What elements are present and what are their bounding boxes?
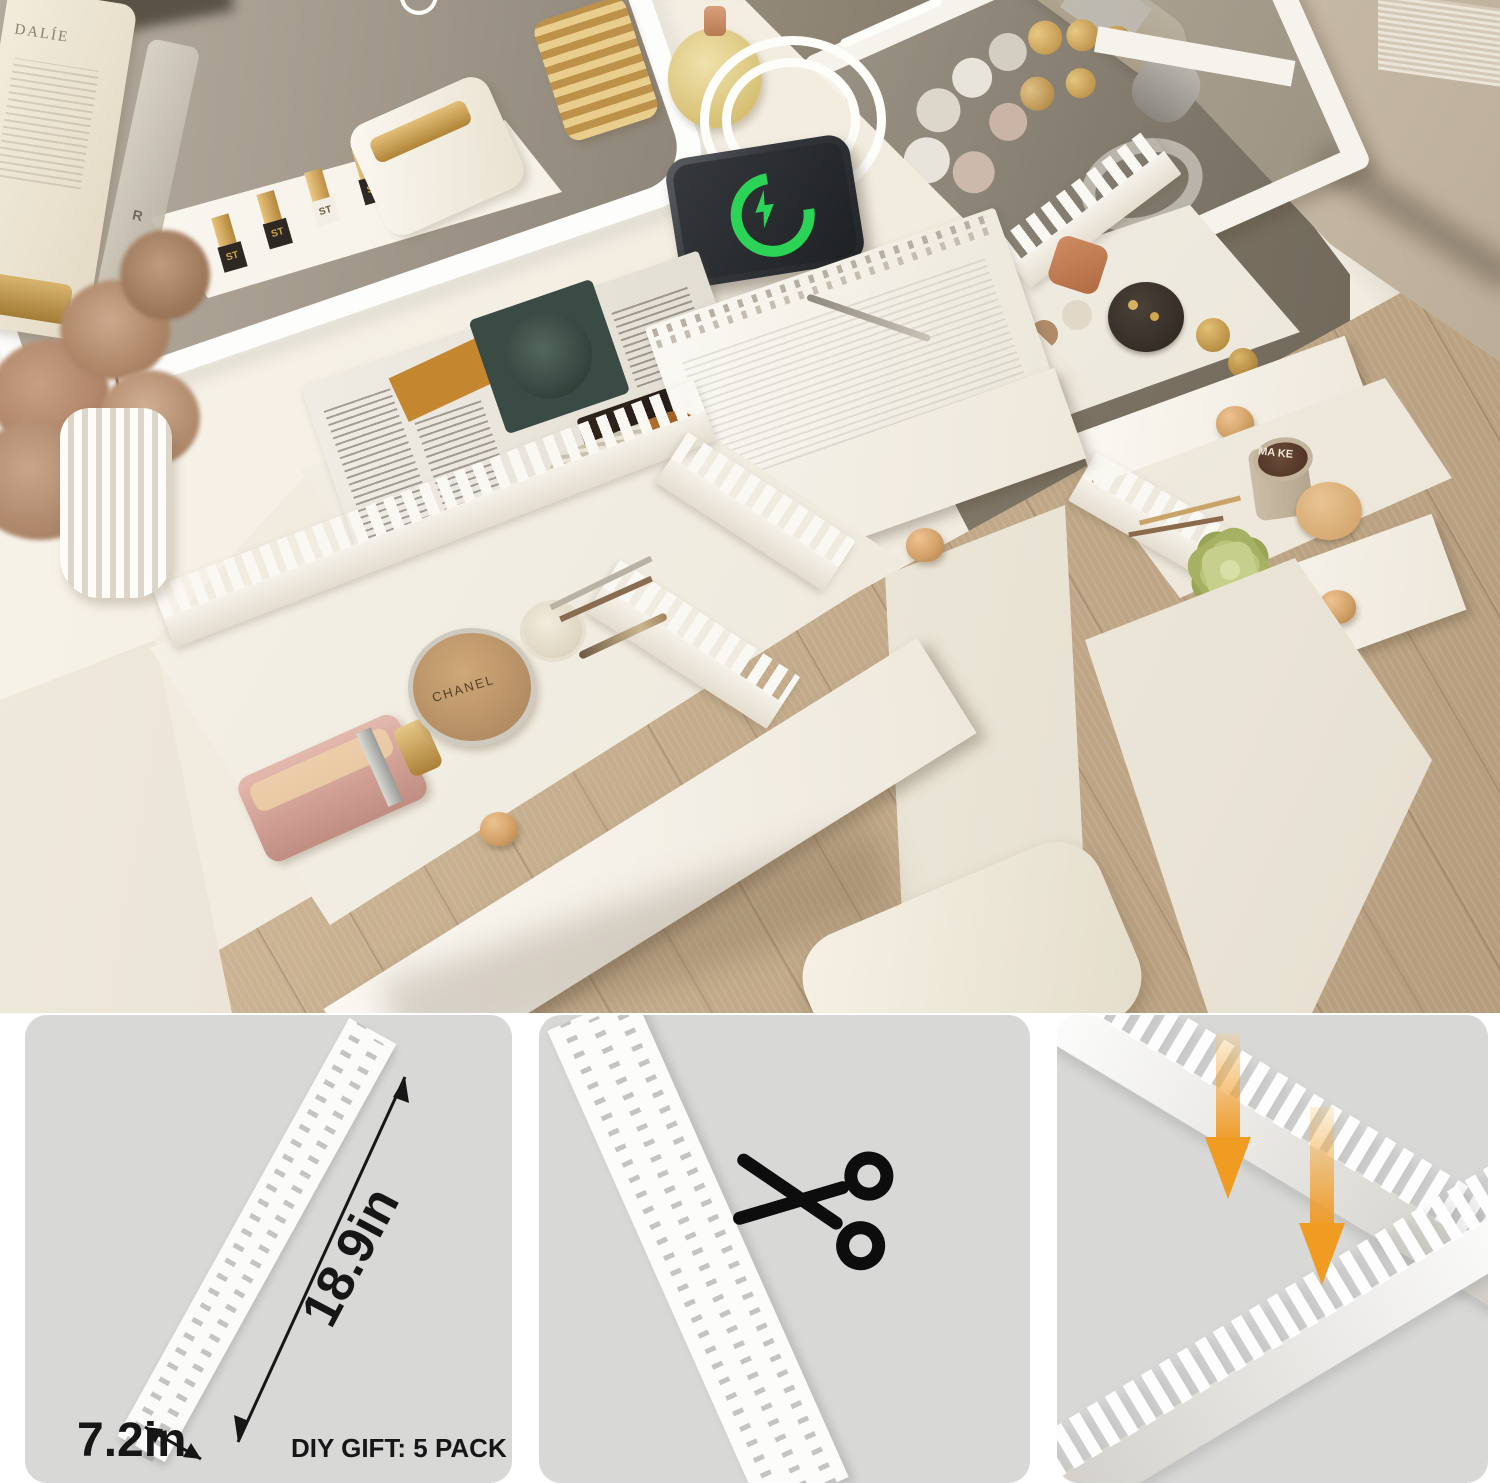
tube-brand-label: DALÍE: [13, 21, 70, 46]
lipstick-top: [1196, 318, 1230, 352]
glass-frame-bar: [1094, 26, 1295, 86]
bottle-cap: [946, 145, 1001, 200]
jewelry-dish: [1108, 282, 1184, 352]
chanel-powder-compact: CHANEL: [408, 628, 536, 746]
panel-assembly-guide: [1057, 1015, 1488, 1483]
diy-gift-note: DIY GIFT: 5 PACK: [291, 1433, 507, 1464]
mirror-touch-switch[interactable]: [395, 0, 443, 20]
bottle-cap-gold: [1023, 15, 1068, 60]
lipstick-body: [304, 168, 330, 202]
arrow-shaft: [1216, 1033, 1240, 1145]
scissors-icon: [718, 1121, 910, 1288]
compact-brand-label: CHANEL: [430, 672, 496, 705]
width-dimension-label: 7.2in: [77, 1413, 186, 1468]
down-arrow-icon: [1205, 1033, 1251, 1213]
panel-cut-guide: [539, 1015, 1030, 1483]
cream-jar-top: [1062, 300, 1092, 330]
pan-photo: [494, 301, 603, 410]
gold-earring: [1128, 300, 1138, 310]
perfume-spray-cap: [704, 6, 726, 36]
wooden-lid: [1296, 482, 1362, 540]
screenshot-canvas: MA KE ST: [0, 0, 1500, 1483]
lipstick-body: [256, 190, 282, 224]
gold-earring: [1150, 312, 1159, 321]
vanity-product-photo: MA KE ST: [0, 0, 1500, 1013]
arrow-head: [1299, 1223, 1345, 1285]
panel-size-guide: 18.9in 7.2in DIY GIFT: 5 PACK: [25, 1015, 512, 1483]
ribbed-white-vase: [60, 408, 172, 598]
arrow-shaft: [1310, 1107, 1334, 1231]
down-arrow-icon: [1299, 1107, 1345, 1307]
succulent-center: [1220, 560, 1240, 580]
arrow-head: [1205, 1137, 1251, 1199]
flower-cluster: [120, 230, 210, 320]
bottle-cap-gold: [1061, 63, 1101, 103]
middle-drawer-knob: [906, 528, 944, 562]
lipstick-cap-label: ST: [270, 226, 285, 240]
lipstick-cap-label: ST: [318, 204, 333, 218]
tube-text-block: [0, 58, 99, 190]
left-drawer-knob: [480, 812, 518, 846]
